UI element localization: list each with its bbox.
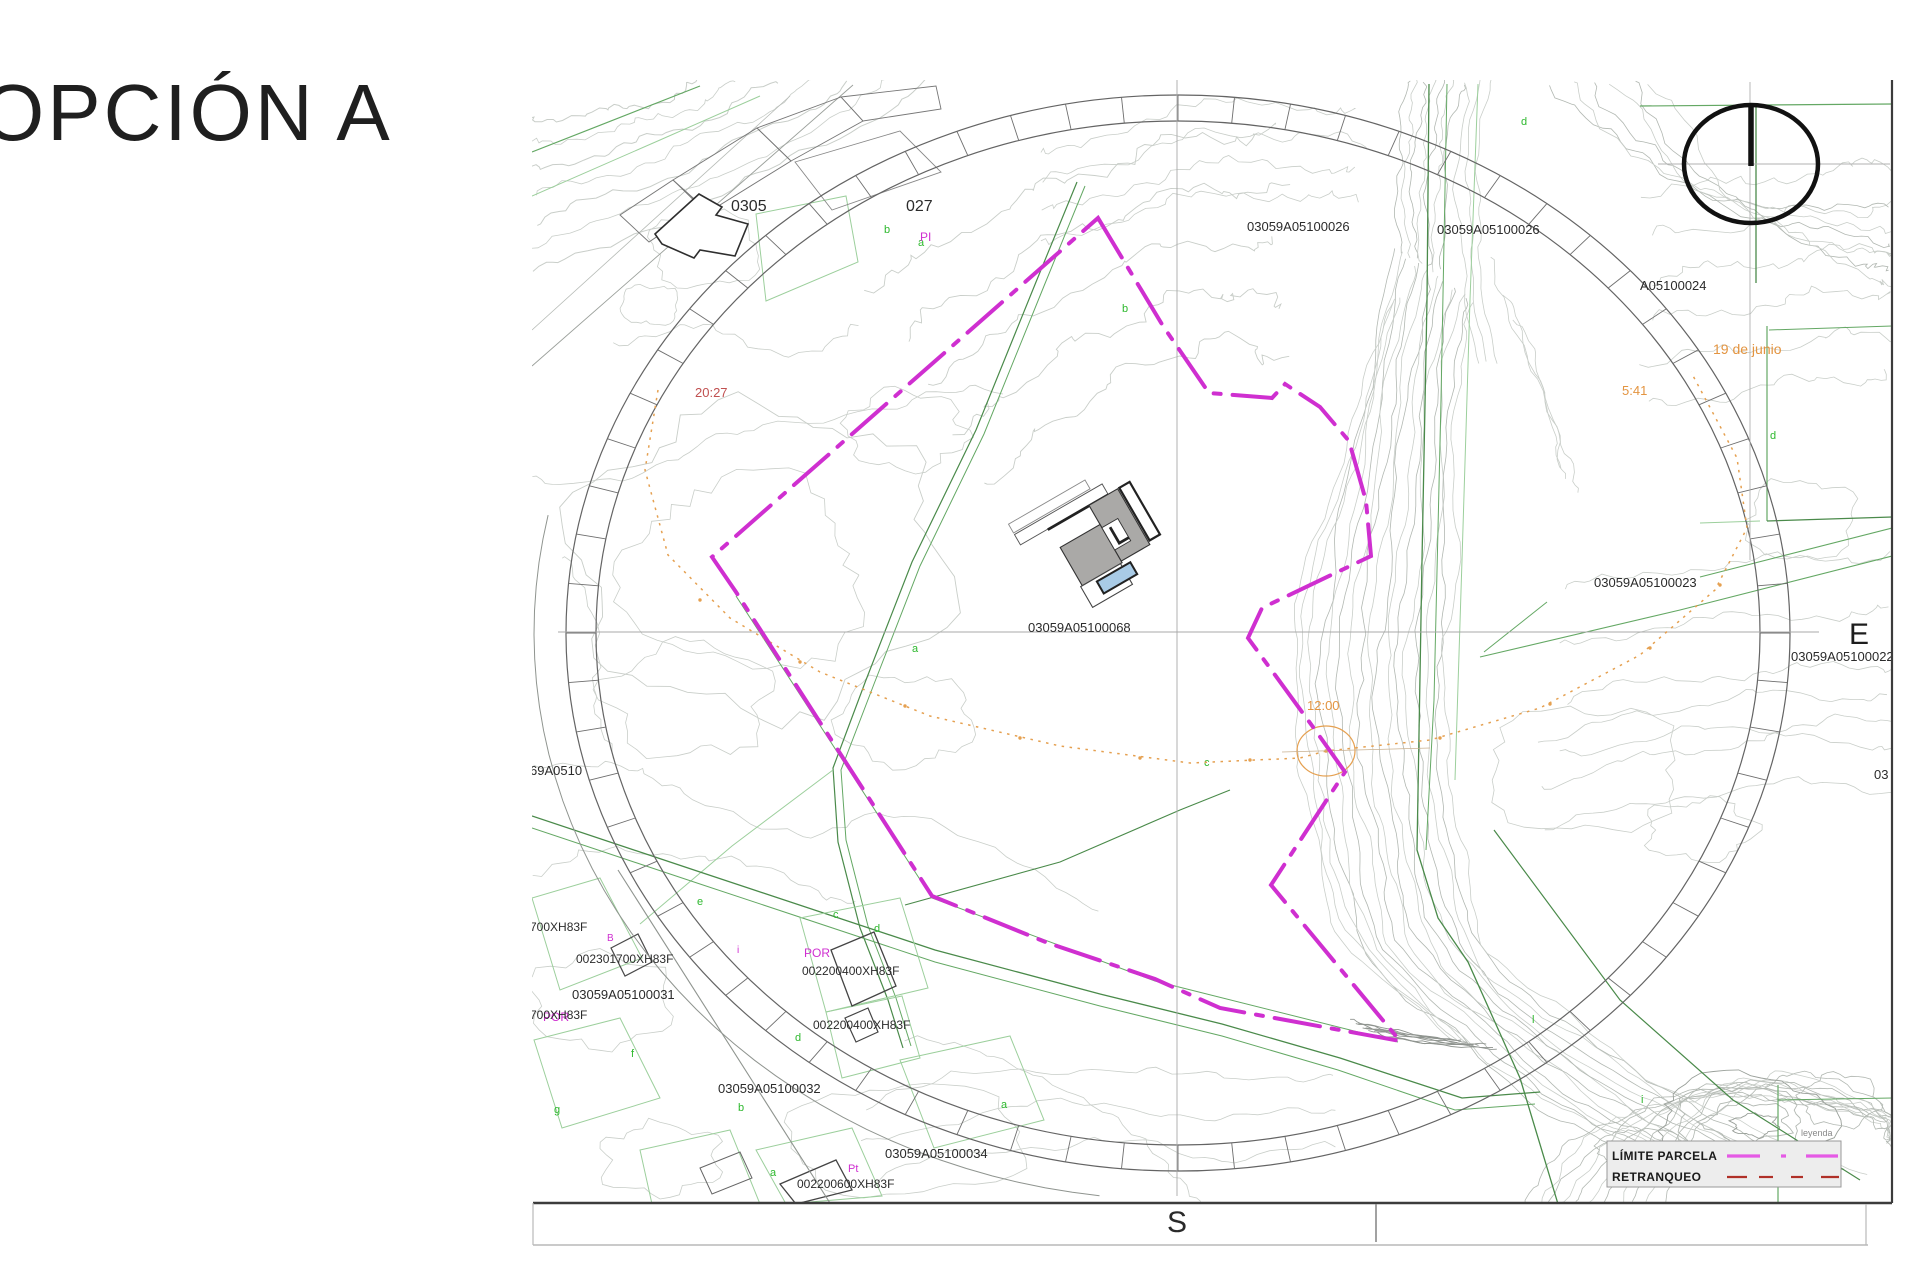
svg-text:002200400XH83F: 002200400XH83F [813,1018,910,1032]
svg-text:03059A05100026: 03059A05100026 [1247,219,1350,234]
svg-text:d: d [1770,430,1776,442]
svg-text:b: b [738,1102,744,1114]
svg-text:002301700XH83F: 002301700XH83F [576,952,673,966]
svg-text:002200600XH83F: 002200600XH83F [797,1177,894,1191]
svg-text:700XH83F: 700XH83F [530,920,587,934]
svg-text:Pt: Pt [848,1163,858,1175]
svg-text:b: b [884,224,890,236]
svg-text:POR: POR [804,946,830,960]
svg-text:03: 03 [1874,767,1888,782]
svg-text:OPCIÓN A: OPCIÓN A [0,68,393,157]
svg-text:leyenda: leyenda [1801,1128,1833,1138]
svg-text:LÍMITE PARCELA: LÍMITE PARCELA [1612,1148,1717,1163]
svg-text:e: e [697,896,703,908]
svg-text:S: S [1167,1206,1187,1239]
svg-text:0305: 0305 [731,198,767,215]
svg-text:A05100024: A05100024 [1640,278,1707,293]
svg-text:03059A05100026: 03059A05100026 [1437,222,1540,237]
svg-text:d: d [795,1032,801,1044]
svg-text:b: b [1122,303,1128,315]
svg-text:03059A05100023: 03059A05100023 [1594,575,1697,590]
svg-text:l: l [1532,1014,1534,1026]
svg-text:5:41: 5:41 [1622,383,1647,398]
svg-text:03059A05100068: 03059A05100068 [1028,620,1131,635]
svg-text:03059A05100032: 03059A05100032 [718,1081,821,1096]
svg-text:i: i [737,945,739,956]
svg-text:03059A05100022: 03059A05100022 [1791,649,1894,664]
svg-text:i: i [1641,1094,1643,1106]
svg-text:a: a [770,1167,777,1179]
svg-text:E: E [1849,618,1869,651]
svg-text:a: a [1001,1099,1008,1111]
svg-text:19 de junio: 19 de junio [1713,341,1782,357]
svg-text:12:00: 12:00 [1307,698,1340,713]
svg-text:027: 027 [906,198,933,215]
svg-text:g: g [554,1104,560,1116]
svg-text:002200400XH83F: 002200400XH83F [802,964,899,978]
svg-text:a: a [912,643,919,655]
svg-text:700XH83F: 700XH83F [530,1008,587,1022]
svg-text:20:27: 20:27 [695,385,728,400]
svg-text:69A0510: 69A0510 [530,763,582,778]
svg-text:B: B [607,933,614,944]
svg-text:c: c [833,909,839,921]
svg-text:RETRANQUEO: RETRANQUEO [1612,1170,1701,1184]
svg-text:d: d [1521,116,1527,128]
svg-text:03059A05100031: 03059A05100031 [572,987,675,1002]
svg-text:03059A05100034: 03059A05100034 [885,1146,988,1161]
svg-text:PI: PI [920,230,931,244]
